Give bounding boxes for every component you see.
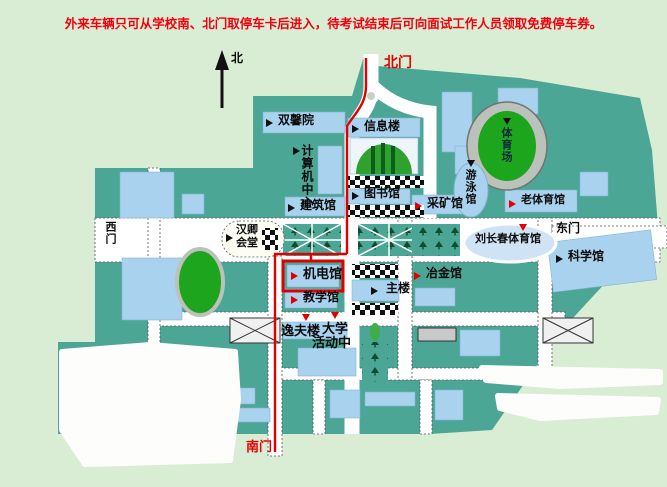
swimming-label: 游泳馆	[464, 169, 475, 205]
mech-elec-marker-icon	[291, 272, 298, 280]
map-graphics	[0, 0, 667, 487]
road-bottom-gap-2	[420, 380, 432, 434]
hanqing-label-line2: 会堂	[236, 238, 258, 249]
garden-2-paths	[358, 224, 420, 256]
stadium-marker-icon	[503, 118, 511, 125]
white-area-southwest	[62, 345, 238, 464]
building-s-1	[298, 348, 356, 376]
science-marker-icon	[556, 255, 563, 263]
liu-gym-marker-icon	[519, 224, 527, 231]
computer-center-marker-icon	[293, 147, 300, 155]
info-building-marker-icon	[352, 125, 359, 133]
metallurgy-marker-icon	[414, 272, 421, 280]
science-label: 科学馆	[568, 250, 604, 262]
building-ne-4	[580, 172, 608, 196]
garden-4-trees	[362, 342, 388, 382]
swimming-marker-icon	[467, 160, 475, 167]
white-road-southeast-1	[482, 368, 660, 386]
stadium-label: 体育场	[500, 127, 511, 163]
lawn-stripe-1	[371, 146, 375, 174]
metallurgy-building	[415, 288, 455, 306]
architecture-label: 建筑馆	[300, 199, 336, 211]
notice-text: 外来车辆只可从学校南、北门取停车卡后进入，待考试结束后可向面试工作人员领取免费停…	[0, 13, 667, 32]
building-s-5	[365, 392, 415, 406]
architecture-marker-icon	[288, 204, 295, 212]
hanqing-marker-icon	[226, 234, 233, 242]
east-gate-label: 东门	[556, 222, 580, 234]
library-complex	[348, 138, 424, 217]
small-lawn	[370, 323, 380, 341]
hanqing-checker	[262, 228, 278, 250]
white-road-southeast-2	[498, 396, 658, 418]
compass-arrow	[215, 50, 229, 108]
metallurgy-label: 冶金馆	[426, 267, 462, 279]
shuangxinyuan-marker-icon	[266, 119, 273, 127]
computer-center-building	[318, 146, 342, 194]
lawn-stripe-3	[391, 146, 395, 174]
small-field	[177, 249, 223, 315]
garden-3-trees	[412, 224, 460, 256]
west-gate-label: 西门	[104, 221, 115, 245]
north-gate-label: 北门	[384, 55, 412, 69]
building-w-3	[122, 258, 182, 320]
compass-arrow-head	[215, 50, 229, 70]
crosswalk-main-top	[352, 264, 398, 278]
building-w-1	[120, 172, 174, 218]
activity-label-line1: 大学	[322, 322, 348, 335]
yifu-marker-icon	[302, 314, 310, 321]
info-building-label: 信息楼	[364, 120, 400, 132]
old-gym-label: 老体育馆	[521, 195, 565, 206]
library-label: 图书馆	[364, 187, 400, 199]
campus-map: 外来车辆只可从学校南、北门取停车卡后进入，待考试结束后可向面试工作人员领取免费停…	[0, 0, 667, 487]
teaching-marker-icon	[291, 296, 298, 304]
building-s-6	[435, 390, 463, 420]
mining-label: 采矿馆	[427, 197, 463, 209]
activity-marker-icon	[331, 312, 339, 319]
crosswalk-library-bottom	[348, 205, 424, 217]
building-w-2	[182, 194, 204, 214]
roundabout-center	[367, 92, 375, 100]
road-bottom-gap-1	[313, 380, 325, 434]
shuangxinyuan-label: 双馨院	[278, 114, 314, 126]
crosswalk-main-bottom	[352, 303, 398, 315]
compass-north-label: 北	[231, 52, 243, 64]
activity-label-line2: 活动中	[312, 336, 351, 349]
building-s-4	[330, 390, 360, 418]
hanqing-label-line1: 汉卿	[236, 225, 258, 236]
garden-1-paths	[283, 224, 341, 256]
mining-marker-icon	[415, 202, 422, 210]
mech-elec-label: 机电馆	[303, 267, 342, 280]
main-building-label: 主楼	[386, 282, 410, 294]
liu-gym-label: 刘长春体育馆	[475, 234, 541, 245]
main-building-marker-icon	[371, 287, 378, 295]
teaching-label: 教学馆	[303, 291, 339, 303]
lawn-stripe-2	[381, 143, 385, 174]
building-s-7	[460, 330, 500, 356]
south-gate-label: 南门	[246, 440, 272, 453]
gray-roof-building	[418, 328, 456, 341]
library-marker-icon	[352, 192, 359, 200]
old-gym-marker-icon	[509, 200, 516, 208]
